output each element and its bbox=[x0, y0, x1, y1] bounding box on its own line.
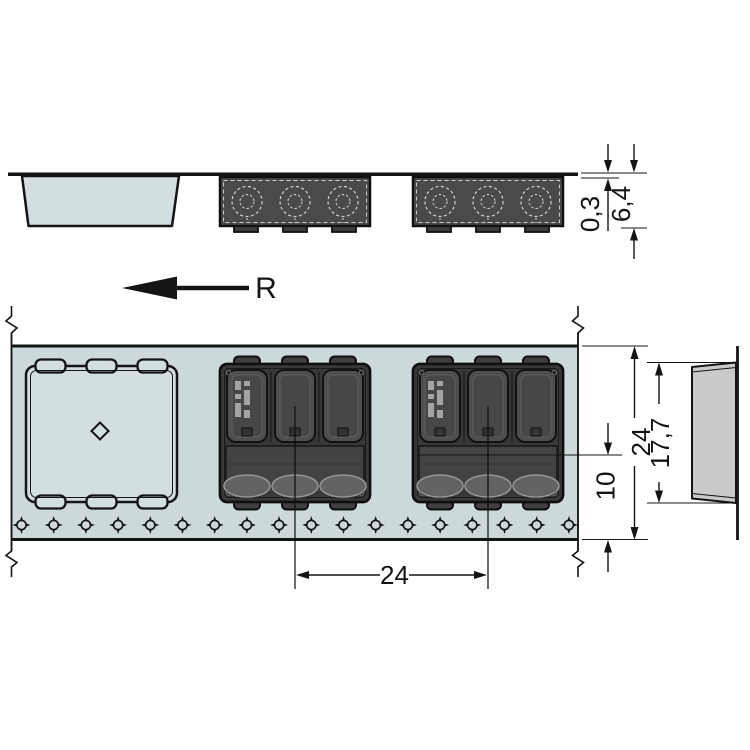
side-view: 0,3 6,4 bbox=[8, 144, 647, 259]
packaging-drawing: 0,3 6,4 R bbox=[0, 0, 750, 750]
top-view: 24 10 17,7 24 bbox=[6, 306, 736, 590]
unreeling-direction: R bbox=[122, 272, 277, 305]
carrier-tape-side bbox=[8, 173, 578, 177]
empty-pocket-side bbox=[22, 176, 179, 226]
dim-center-to-edge-value: 10 bbox=[591, 472, 621, 501]
pocket-profile bbox=[692, 363, 736, 504]
component-side bbox=[220, 177, 370, 232]
end-view bbox=[692, 346, 738, 540]
direction-label: R bbox=[255, 272, 277, 305]
drawing-canvas: 0,3 6,4 R bbox=[0, 0, 750, 750]
dim-overall-height-value: 6,4 bbox=[606, 186, 636, 222]
dim-pocket-pitch-value: 24 bbox=[380, 560, 409, 590]
dim-tape-thickness-value: 0,3 bbox=[575, 196, 605, 232]
dim-pocket-length: 17,7 bbox=[645, 363, 675, 504]
dim-pocket-length-value: 17,7 bbox=[645, 418, 675, 469]
component-side bbox=[413, 177, 563, 232]
dim-center-to-edge: 10 bbox=[591, 423, 621, 572]
empty-pocket bbox=[26, 360, 177, 509]
direction-arrow-head bbox=[122, 277, 177, 300]
dim-pocket-pitch: 24 bbox=[296, 560, 487, 590]
